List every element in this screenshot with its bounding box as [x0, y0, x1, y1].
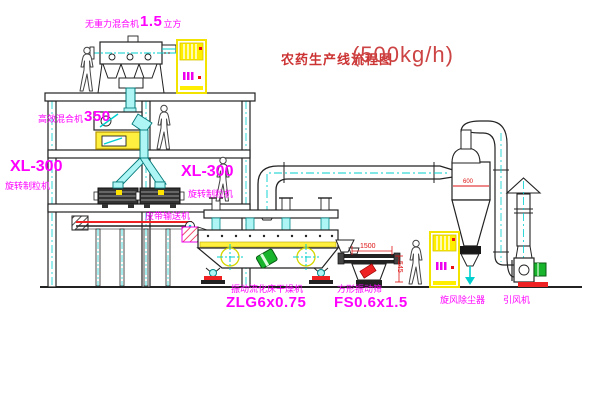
label-screen-name: 方形振动筛: [337, 285, 382, 294]
label-dryer-name: 振动流化床干燥机: [231, 285, 303, 294]
feed-chute: [182, 227, 198, 242]
label-granulator-left-model: XL-300: [10, 159, 62, 175]
person-figure: [157, 105, 170, 149]
fan-base: [518, 282, 548, 287]
dim-screen-length: 1500: [360, 243, 376, 250]
label-mixer-350: 高效混合机350: [38, 109, 111, 124]
label-gravity-mixer: 无重力混合机1.5立方: [85, 14, 181, 29]
process-flow-diagram: 1.4: [0, 0, 600, 403]
gauge-marks: [183, 72, 194, 80]
fluid-bed-dryer-machine: [198, 198, 354, 284]
fan-motor: [534, 263, 546, 276]
dim-screen-height: 545: [396, 261, 403, 273]
person-figure: [409, 240, 422, 284]
label-granulator-right-name: 旋转制粒机: [188, 190, 233, 199]
indicator-dot: [452, 238, 455, 241]
belt-conveyor-machine: [72, 216, 210, 286]
indicator-dot: [451, 266, 454, 269]
label-granulator-left-name: 旋转制粒机: [5, 182, 50, 191]
label-screen-model: FS0.6x1.5: [334, 295, 408, 310]
label-dryer-model: ZLG6x0.75: [226, 295, 306, 310]
label-cyclone: 旋风除尘器: [440, 296, 485, 305]
control-cabinet-bottom: [430, 232, 459, 287]
vibration-mount: [309, 268, 333, 284]
control-cabinet-top: [177, 40, 206, 93]
diagram-title-capacity: (500kg/h): [352, 44, 454, 66]
vibration-mount: [201, 268, 225, 284]
dim-cyclone-inlet: 600: [463, 179, 473, 185]
label-granulator-right-model: XL-300: [181, 164, 233, 180]
label-belt-conveyor: 皮带输送机: [145, 212, 190, 221]
induced-draft-fan-machine: [512, 258, 548, 287]
indicator-dot: [198, 76, 201, 79]
label-fan: 引风机: [503, 296, 530, 305]
gauge-marks: [436, 262, 447, 270]
indicator-dot: [199, 47, 202, 50]
granulator-left-machine: [94, 182, 142, 208]
